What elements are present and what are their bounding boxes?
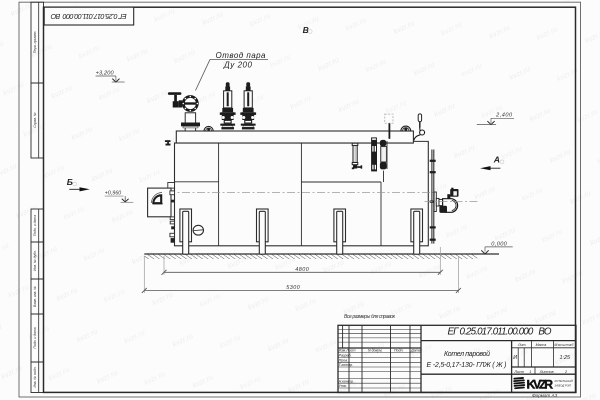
svg-text:Перв. примен.: Перв. примен.	[33, 31, 37, 54]
svg-text:Т.контр.: Т.контр.	[339, 363, 354, 367]
svg-text:Котел паровой: Котел паровой	[444, 350, 490, 358]
svg-text:ЗАВОД РЭП: ЗАВОД РЭП	[555, 384, 572, 388]
svg-text:Пров.: Пров.	[339, 358, 348, 362]
svg-text:Справ. №: Справ. №	[33, 112, 37, 128]
svg-text:1:25: 1:25	[560, 355, 571, 361]
svg-text:Листов: Листов	[539, 370, 554, 374]
svg-text:КОТЕЛЬНЫЙ: КОТЕЛЬНЫЙ	[555, 379, 574, 383]
svg-text:Лист: Лист	[513, 370, 524, 374]
svg-text:В: В	[303, 25, 309, 35]
svg-text:+3,200: +3,200	[96, 70, 115, 76]
svg-text:Лит.: Лит.	[517, 343, 526, 347]
svg-text:Е -2,5-0,17-130- ГЛЖ ( Ж ): Е -2,5-0,17-130- ГЛЖ ( Ж )	[427, 362, 507, 369]
svg-text:+0,960: +0,960	[105, 190, 122, 196]
svg-text:KVZR: KVZR	[527, 378, 554, 392]
svg-text:ЕГ 0.25.017.011.00.000 ВО: ЕГ 0.25.017.011.00.000 ВО	[448, 327, 552, 338]
svg-text:Отвод пара: Отвод пара	[216, 51, 267, 60]
svg-text:Все размеры для справок: Все размеры для справок	[344, 314, 396, 320]
svg-text:А: А	[493, 155, 500, 165]
svg-text:Масса: Масса	[536, 343, 547, 347]
svg-text:2,400: 2,400	[495, 112, 513, 118]
svg-text:Формат А3: Формат А3	[532, 393, 558, 398]
svg-text:Подп. и дата: Подп. и дата	[33, 327, 37, 348]
svg-text:И: И	[513, 355, 517, 361]
svg-text:Взам. инв. №: Взам. инв. №	[33, 286, 37, 307]
svg-text:Изм.Лист: Изм.Лист	[339, 348, 356, 352]
svg-text:5300: 5300	[286, 285, 300, 291]
svg-text:Подп. и дата: Подп. и дата	[33, 215, 37, 236]
svg-text:ЕГ 0.25.017.011.00.000 ВО: ЕГ 0.25.017.011.00.000 ВО	[50, 12, 126, 21]
svg-text:Ду 200: Ду 200	[223, 61, 253, 70]
svg-text:Масштаб: Масштаб	[554, 343, 574, 347]
svg-text:Дата: Дата	[410, 348, 420, 352]
svg-text:Подп.: Подп.	[394, 348, 404, 352]
svg-text:Разраб.: Разраб.	[339, 354, 352, 358]
svg-text:1: 1	[529, 370, 531, 374]
svg-text:Н.контр.: Н.контр.	[339, 379, 354, 383]
svg-text:N докум.: N докум.	[368, 348, 383, 352]
svg-text:Утв.: Утв.	[339, 384, 347, 388]
svg-text:Б: Б	[67, 177, 73, 187]
svg-text:Инв. № подл.: Инв. № подл.	[33, 366, 37, 387]
svg-text:Инв. № дубл.: Инв. № дубл.	[33, 250, 37, 271]
svg-text:4800: 4800	[295, 267, 309, 273]
